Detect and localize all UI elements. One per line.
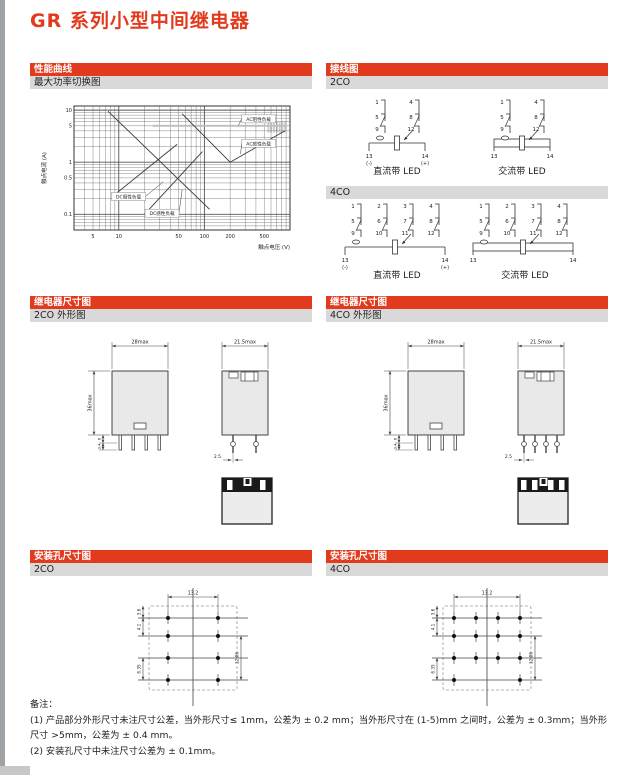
- svg-text:1: 1: [500, 100, 504, 106]
- svg-text:6: 6: [97, 437, 102, 440]
- svg-text:10: 10: [504, 231, 511, 237]
- svg-text:10: 10: [116, 234, 122, 240]
- page-edge-strip: [0, 0, 5, 775]
- svg-text:28max: 28max: [131, 340, 148, 346]
- notes-block: 备注： (1) 产品部分外形尺寸未注尺寸公差，当外形尺寸≤ 1mm，公差为 ± …: [30, 697, 616, 760]
- note-item-1: (1) 产品部分外形尺寸未注尺寸公差，当外形尺寸≤ 1mm，公差为 ± 0.2 …: [30, 713, 616, 744]
- svg-text:6: 6: [377, 219, 381, 225]
- svg-text:6: 6: [505, 219, 509, 225]
- svg-text:21.5max: 21.5max: [530, 340, 552, 346]
- header-mounting-holes-left: 安装孔尺寸图: [30, 550, 312, 563]
- svg-text:AC阻性负载: AC阻性负载: [246, 116, 271, 123]
- svg-text:14: 14: [547, 154, 554, 160]
- svg-text:4.1: 4.1: [431, 623, 436, 630]
- svg-text:DC阻性负载: DC阻性负载: [116, 193, 142, 200]
- svg-text:5: 5: [69, 124, 72, 130]
- svg-text:4: 4: [534, 100, 538, 106]
- svg-text:4.1: 4.1: [137, 623, 142, 630]
- svg-text:6.35: 6.35: [431, 664, 436, 674]
- subheader-wiring-2co: 2CO: [326, 76, 608, 89]
- header-mounting-holes-right: 安装孔尺寸图: [326, 550, 608, 563]
- datasheet-page: GR 系列小型中间继电器 性能曲线 最大功率切换图 接线图 2CO 510501…: [0, 0, 638, 775]
- notes-label: 备注：: [30, 697, 616, 713]
- subheader-outline-2co: 2CO 外形图: [30, 309, 312, 322]
- hole-pattern-2co: 13.23.64.16.3512.06: [118, 582, 268, 712]
- hole-pattern-4co: 13.23.64.16.3512.06: [412, 582, 562, 712]
- svg-text:4: 4: [557, 204, 561, 210]
- page-title: GR 系列小型中间继电器: [30, 6, 250, 33]
- svg-text:21.5max: 21.5max: [234, 340, 256, 346]
- svg-text:13: 13: [366, 154, 373, 160]
- wiring-4co-dc-diagram: 1592610371148121314(-)(+): [337, 200, 457, 272]
- svg-text:14: 14: [442, 258, 449, 264]
- subheader-holes-4co: 4CO: [326, 563, 608, 576]
- svg-text:触点电流 (A): 触点电流 (A): [40, 152, 48, 184]
- svg-text:1: 1: [351, 204, 355, 210]
- header-relay-dimensions-right: 继电器尺寸图: [326, 296, 608, 309]
- svg-text:12: 12: [556, 231, 563, 237]
- subheader-max-power-chart: 最大功率切换图: [30, 76, 312, 89]
- svg-text:DC感性负载: DC感性负载: [149, 210, 175, 217]
- svg-text:0.5: 0.5: [64, 176, 72, 182]
- svg-text:1: 1: [375, 100, 379, 106]
- svg-text:5: 5: [351, 219, 355, 225]
- svg-text:5: 5: [500, 115, 504, 121]
- svg-text:7: 7: [403, 219, 407, 225]
- header-wiring-diagram: 接线图: [326, 63, 608, 76]
- note-item-2: (2) 安装孔尺寸中未注尺寸公差为 ± 0.1mm。: [30, 744, 616, 760]
- svg-text:5: 5: [479, 219, 483, 225]
- subheader-outline-4co: 4CO 外形图: [326, 309, 608, 322]
- outline-drawing-4co: 28max36max63.421.5max2.5: [368, 326, 638, 526]
- svg-text:3.4: 3.4: [97, 443, 102, 450]
- svg-text:6: 6: [393, 437, 398, 440]
- svg-text:11: 11: [402, 231, 409, 237]
- wiring-2co-ac-diagram: 15948121314: [482, 96, 562, 168]
- header-relay-dimensions-left: 继电器尺寸图: [30, 296, 312, 309]
- svg-text:28max: 28max: [427, 340, 444, 346]
- svg-text:3.6: 3.6: [431, 608, 436, 615]
- svg-text:14: 14: [422, 154, 429, 160]
- svg-text:AC感性负载: AC感性负载: [246, 140, 271, 147]
- svg-text:8: 8: [409, 115, 413, 121]
- svg-text:14: 14: [570, 258, 577, 264]
- svg-text:9: 9: [500, 127, 504, 133]
- performance-chart: 5105010020050010510.50.1触点电压 (V)触点电流 (A)…: [38, 100, 300, 268]
- svg-text:11: 11: [530, 231, 537, 237]
- svg-text:13: 13: [491, 154, 498, 160]
- caption-2co-dc-led: 直流带 LED: [347, 164, 447, 177]
- svg-text:触点电压 (V): 触点电压 (V): [258, 243, 290, 251]
- svg-text:36max: 36max: [384, 394, 390, 411]
- svg-text:3: 3: [531, 204, 535, 210]
- svg-text:13: 13: [342, 258, 349, 264]
- caption-2co-ac-led: 交流带 LED: [472, 164, 572, 177]
- svg-text:36max: 36max: [88, 394, 94, 411]
- svg-text:8: 8: [429, 219, 433, 225]
- svg-text:2: 2: [377, 204, 381, 210]
- header-performance-curve: 性能曲线: [30, 63, 312, 76]
- svg-text:5: 5: [91, 234, 94, 240]
- svg-text:8: 8: [557, 219, 561, 225]
- svg-text:1: 1: [69, 160, 72, 166]
- wiring-4co-ac-diagram: 1592610371148121314: [465, 200, 585, 272]
- svg-text:3.6: 3.6: [137, 608, 142, 615]
- svg-text:1: 1: [479, 204, 483, 210]
- subheader-wiring-4co: 4CO: [326, 186, 608, 199]
- svg-text:13.2: 13.2: [482, 591, 493, 597]
- svg-text:0.1: 0.1: [64, 212, 72, 218]
- caption-4co-ac-led: 交流带 LED: [475, 268, 575, 281]
- svg-text:2: 2: [505, 204, 509, 210]
- svg-text:9: 9: [351, 231, 355, 237]
- svg-text:12.06: 12.06: [529, 652, 534, 664]
- svg-text:3.4: 3.4: [393, 443, 398, 450]
- svg-text:10: 10: [376, 231, 383, 237]
- outline-drawing-2co: 28max36max63.421.5max2.5: [72, 326, 342, 526]
- svg-text:500: 500: [259, 234, 269, 240]
- svg-text:4: 4: [429, 204, 433, 210]
- svg-text:13: 13: [470, 258, 477, 264]
- svg-text:4: 4: [409, 100, 413, 106]
- svg-text:9: 9: [375, 127, 379, 133]
- subheader-holes-2co: 2CO: [30, 563, 312, 576]
- svg-text:7: 7: [531, 219, 535, 225]
- svg-text:13.2: 13.2: [188, 591, 199, 597]
- svg-text:3: 3: [403, 204, 407, 210]
- svg-text:2.5: 2.5: [505, 454, 512, 460]
- wiring-2co-dc-diagram: 15948121314(-)(+): [357, 96, 437, 168]
- svg-text:12: 12: [428, 231, 435, 237]
- svg-text:200: 200: [225, 234, 235, 240]
- footer-page-tab: [0, 766, 30, 775]
- svg-text:6.35: 6.35: [137, 664, 142, 674]
- svg-text:9: 9: [479, 231, 483, 237]
- caption-4co-dc-led: 直流带 LED: [347, 268, 447, 281]
- svg-text:8: 8: [534, 115, 538, 121]
- svg-text:10: 10: [66, 108, 72, 114]
- svg-text:100: 100: [200, 234, 210, 240]
- svg-text:5: 5: [375, 115, 379, 121]
- svg-text:2.5: 2.5: [214, 454, 221, 460]
- svg-text:12.06: 12.06: [235, 652, 240, 664]
- svg-text:50: 50: [175, 234, 181, 240]
